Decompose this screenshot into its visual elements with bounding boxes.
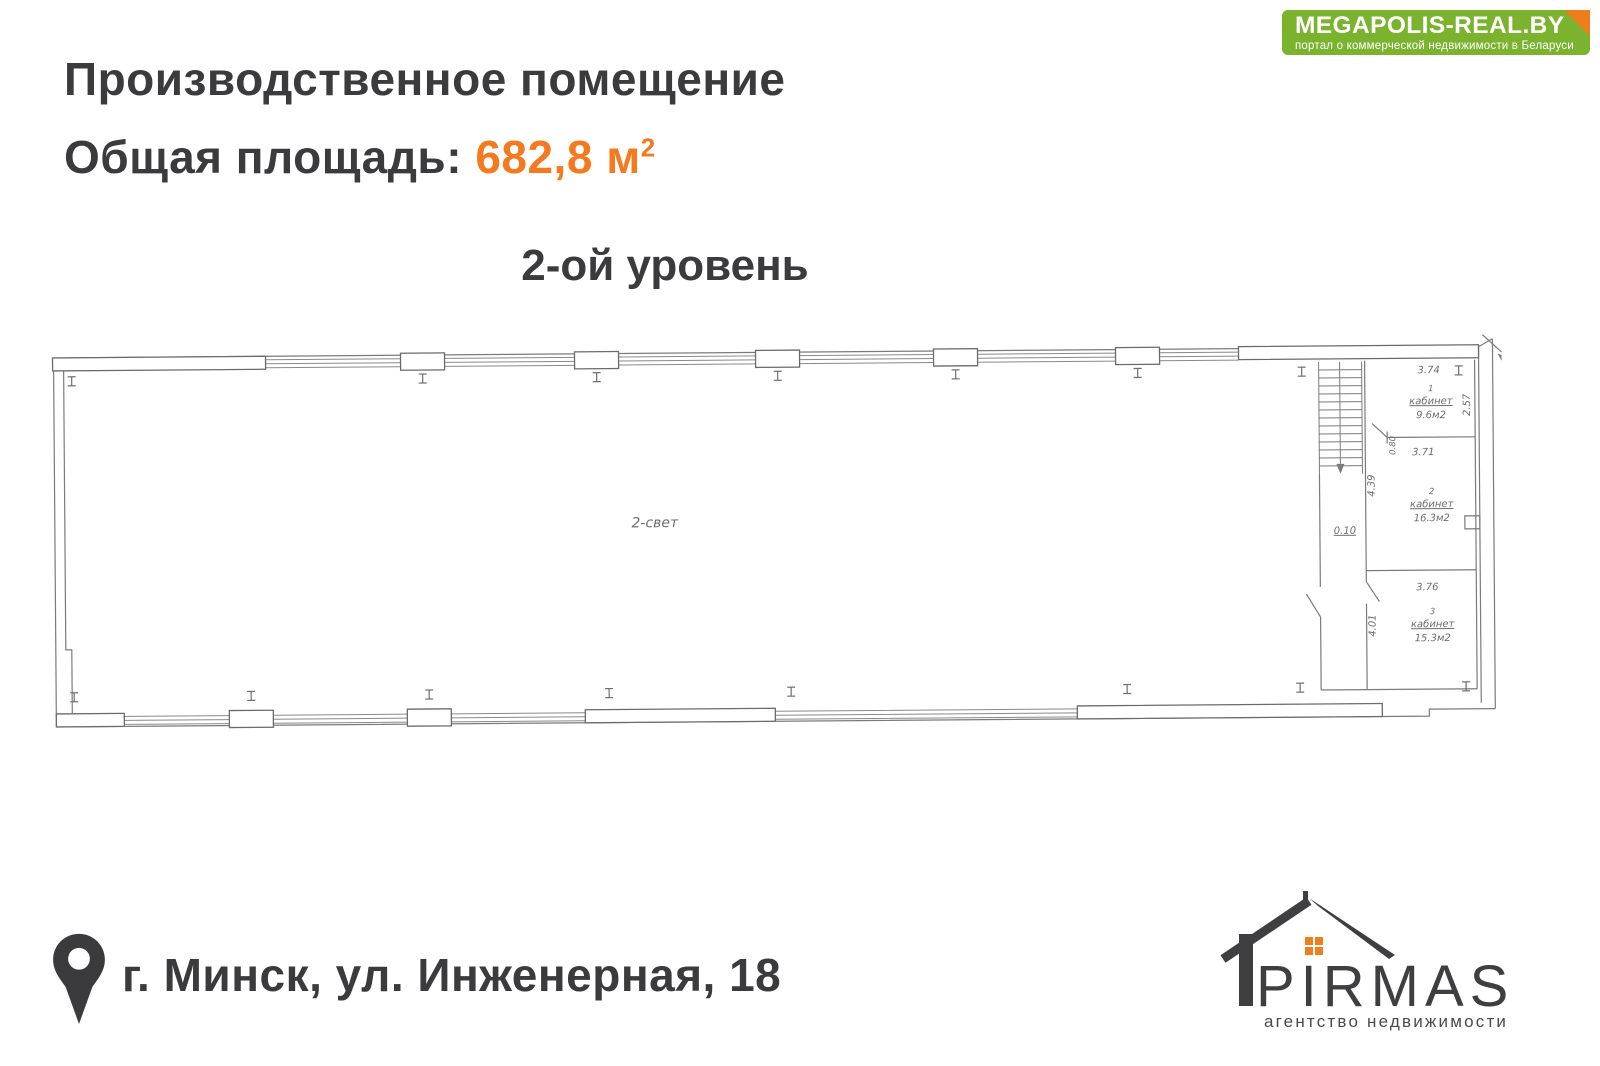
address-text: г. Минск, ул. Инженерная, 18 bbox=[122, 948, 781, 1002]
hall-label: 2-свет bbox=[631, 515, 679, 531]
staircase bbox=[1319, 362, 1363, 474]
room-2-name: кабинет bbox=[1410, 498, 1455, 510]
room-3-number: 3 bbox=[1430, 607, 1436, 617]
room-2-number: 2 bbox=[1429, 487, 1435, 497]
room-3-width-dim: 3.76 bbox=[1416, 582, 1438, 593]
agency-logo: PIRMAS агентство недвижимости bbox=[1190, 866, 1558, 1038]
room-2-depth-dim: 4.39 bbox=[1366, 474, 1377, 496]
portal-banner-title: MEGAPOLIS-REAL.BY bbox=[1295, 13, 1590, 39]
room-3-area: 15.3м2 bbox=[1415, 633, 1451, 644]
column-marks bbox=[68, 366, 1471, 702]
room-1-name: кабинет bbox=[1409, 395, 1454, 407]
room-3-depth-dim: 4.01 bbox=[1368, 614, 1379, 636]
logo-one-mark bbox=[1239, 934, 1253, 1006]
wall-step-dim: 0.10 bbox=[1334, 526, 1356, 537]
portal-banner: MEGAPOLIS-REAL.BY портал о коммерческой … bbox=[1282, 10, 1590, 55]
room-2-width-dim: 3.71 bbox=[1412, 447, 1434, 458]
total-area-label: Общая площадь: bbox=[64, 131, 462, 183]
flyer-page: MEGAPOLIS-REAL.BY портал о коммерческой … bbox=[0, 0, 1600, 1066]
location-pin-icon bbox=[50, 930, 108, 1030]
room-3-name: кабинет bbox=[1411, 618, 1456, 630]
room-1-width-dim: 3.74 bbox=[1417, 365, 1439, 376]
floor-plan: 2-свет 3.74 2.57 1 кабинет 9.6м2 0.80 3.… bbox=[46, 331, 1504, 752]
north-arrow-icon bbox=[1498, 354, 1505, 363]
room-1-area: 9.6м2 bbox=[1416, 410, 1446, 421]
total-area-superscript: 2 bbox=[641, 133, 656, 163]
portal-banner-subtitle: портал о коммерческой недвижимости в Бел… bbox=[1295, 40, 1590, 52]
outer-walls bbox=[52, 335, 1504, 727]
logo-window-icon bbox=[1305, 937, 1323, 955]
inner-walls bbox=[64, 360, 1482, 714]
logo-name-text: PIRMAS bbox=[1256, 954, 1514, 1019]
top-wall-pillars bbox=[52, 345, 1478, 373]
bottom-wall-pillars bbox=[56, 702, 1382, 729]
door-width-dim: 0.80 bbox=[1388, 436, 1398, 455]
page-title: Производственное помещение bbox=[64, 52, 786, 106]
room-1-number: 1 bbox=[1428, 384, 1434, 394]
logo-tagline-text: агентство недвижимости bbox=[1264, 1012, 1508, 1031]
total-area-line: Общая площадь: 682,8 м2 bbox=[64, 130, 656, 184]
room-2-area: 16.3м2 bbox=[1414, 513, 1450, 524]
stair-direction-arrow-icon bbox=[1336, 464, 1344, 474]
room-1-depth-dim: 2.57 bbox=[1462, 393, 1473, 416]
total-area-value: 682,8 м2 bbox=[475, 131, 655, 183]
level-heading: 2-ой уровень bbox=[430, 241, 900, 291]
